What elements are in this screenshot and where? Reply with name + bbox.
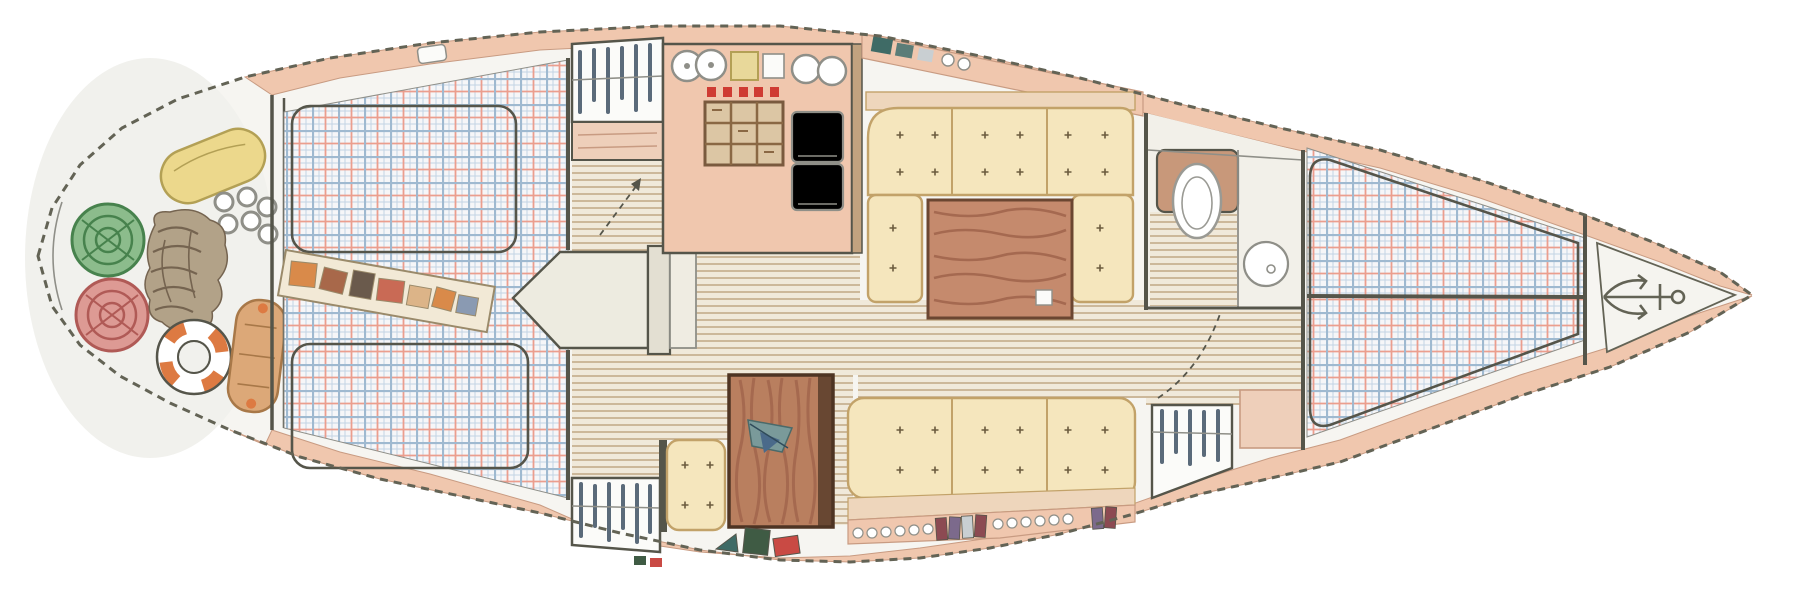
aft-cabin <box>272 58 568 500</box>
lower-cabinet <box>1240 390 1302 448</box>
v-berth-seam <box>1307 296 1583 297</box>
nav-seat <box>667 440 725 530</box>
chart-table <box>729 375 833 527</box>
table-hinge <box>1036 290 1052 305</box>
galley-double-sink <box>672 50 726 81</box>
settee-top-cushions <box>868 108 1133 195</box>
life-ring <box>157 320 231 394</box>
wash-basin <box>1244 242 1288 286</box>
refrigerator <box>792 112 843 210</box>
salon-dinette <box>848 34 1143 544</box>
cutting-board <box>731 52 758 80</box>
stove-oven-grate <box>705 102 783 165</box>
hanging-locker-top <box>572 38 663 122</box>
sole-nav-left <box>663 375 729 440</box>
red-coiled-line <box>76 279 148 351</box>
settee-right-arm <box>1072 195 1133 302</box>
settee-left-arm <box>868 195 922 302</box>
green-coiled-line <box>72 204 144 276</box>
dinette-table <box>928 200 1072 318</box>
deck-item-green <box>634 556 646 565</box>
deck-item-red <box>650 558 662 567</box>
galley-aft-wall <box>852 44 862 253</box>
yacht-floor-plan <box>0 0 1807 595</box>
drawer-unit <box>572 122 663 160</box>
settee-bottom-cushions <box>848 398 1135 498</box>
straight-settee <box>848 398 1135 520</box>
head-compartment <box>1146 113 1303 498</box>
galley <box>663 44 862 253</box>
deck-hatch <box>417 44 447 64</box>
hanging-locker-bottom <box>572 478 660 552</box>
counter-inset <box>763 54 784 78</box>
